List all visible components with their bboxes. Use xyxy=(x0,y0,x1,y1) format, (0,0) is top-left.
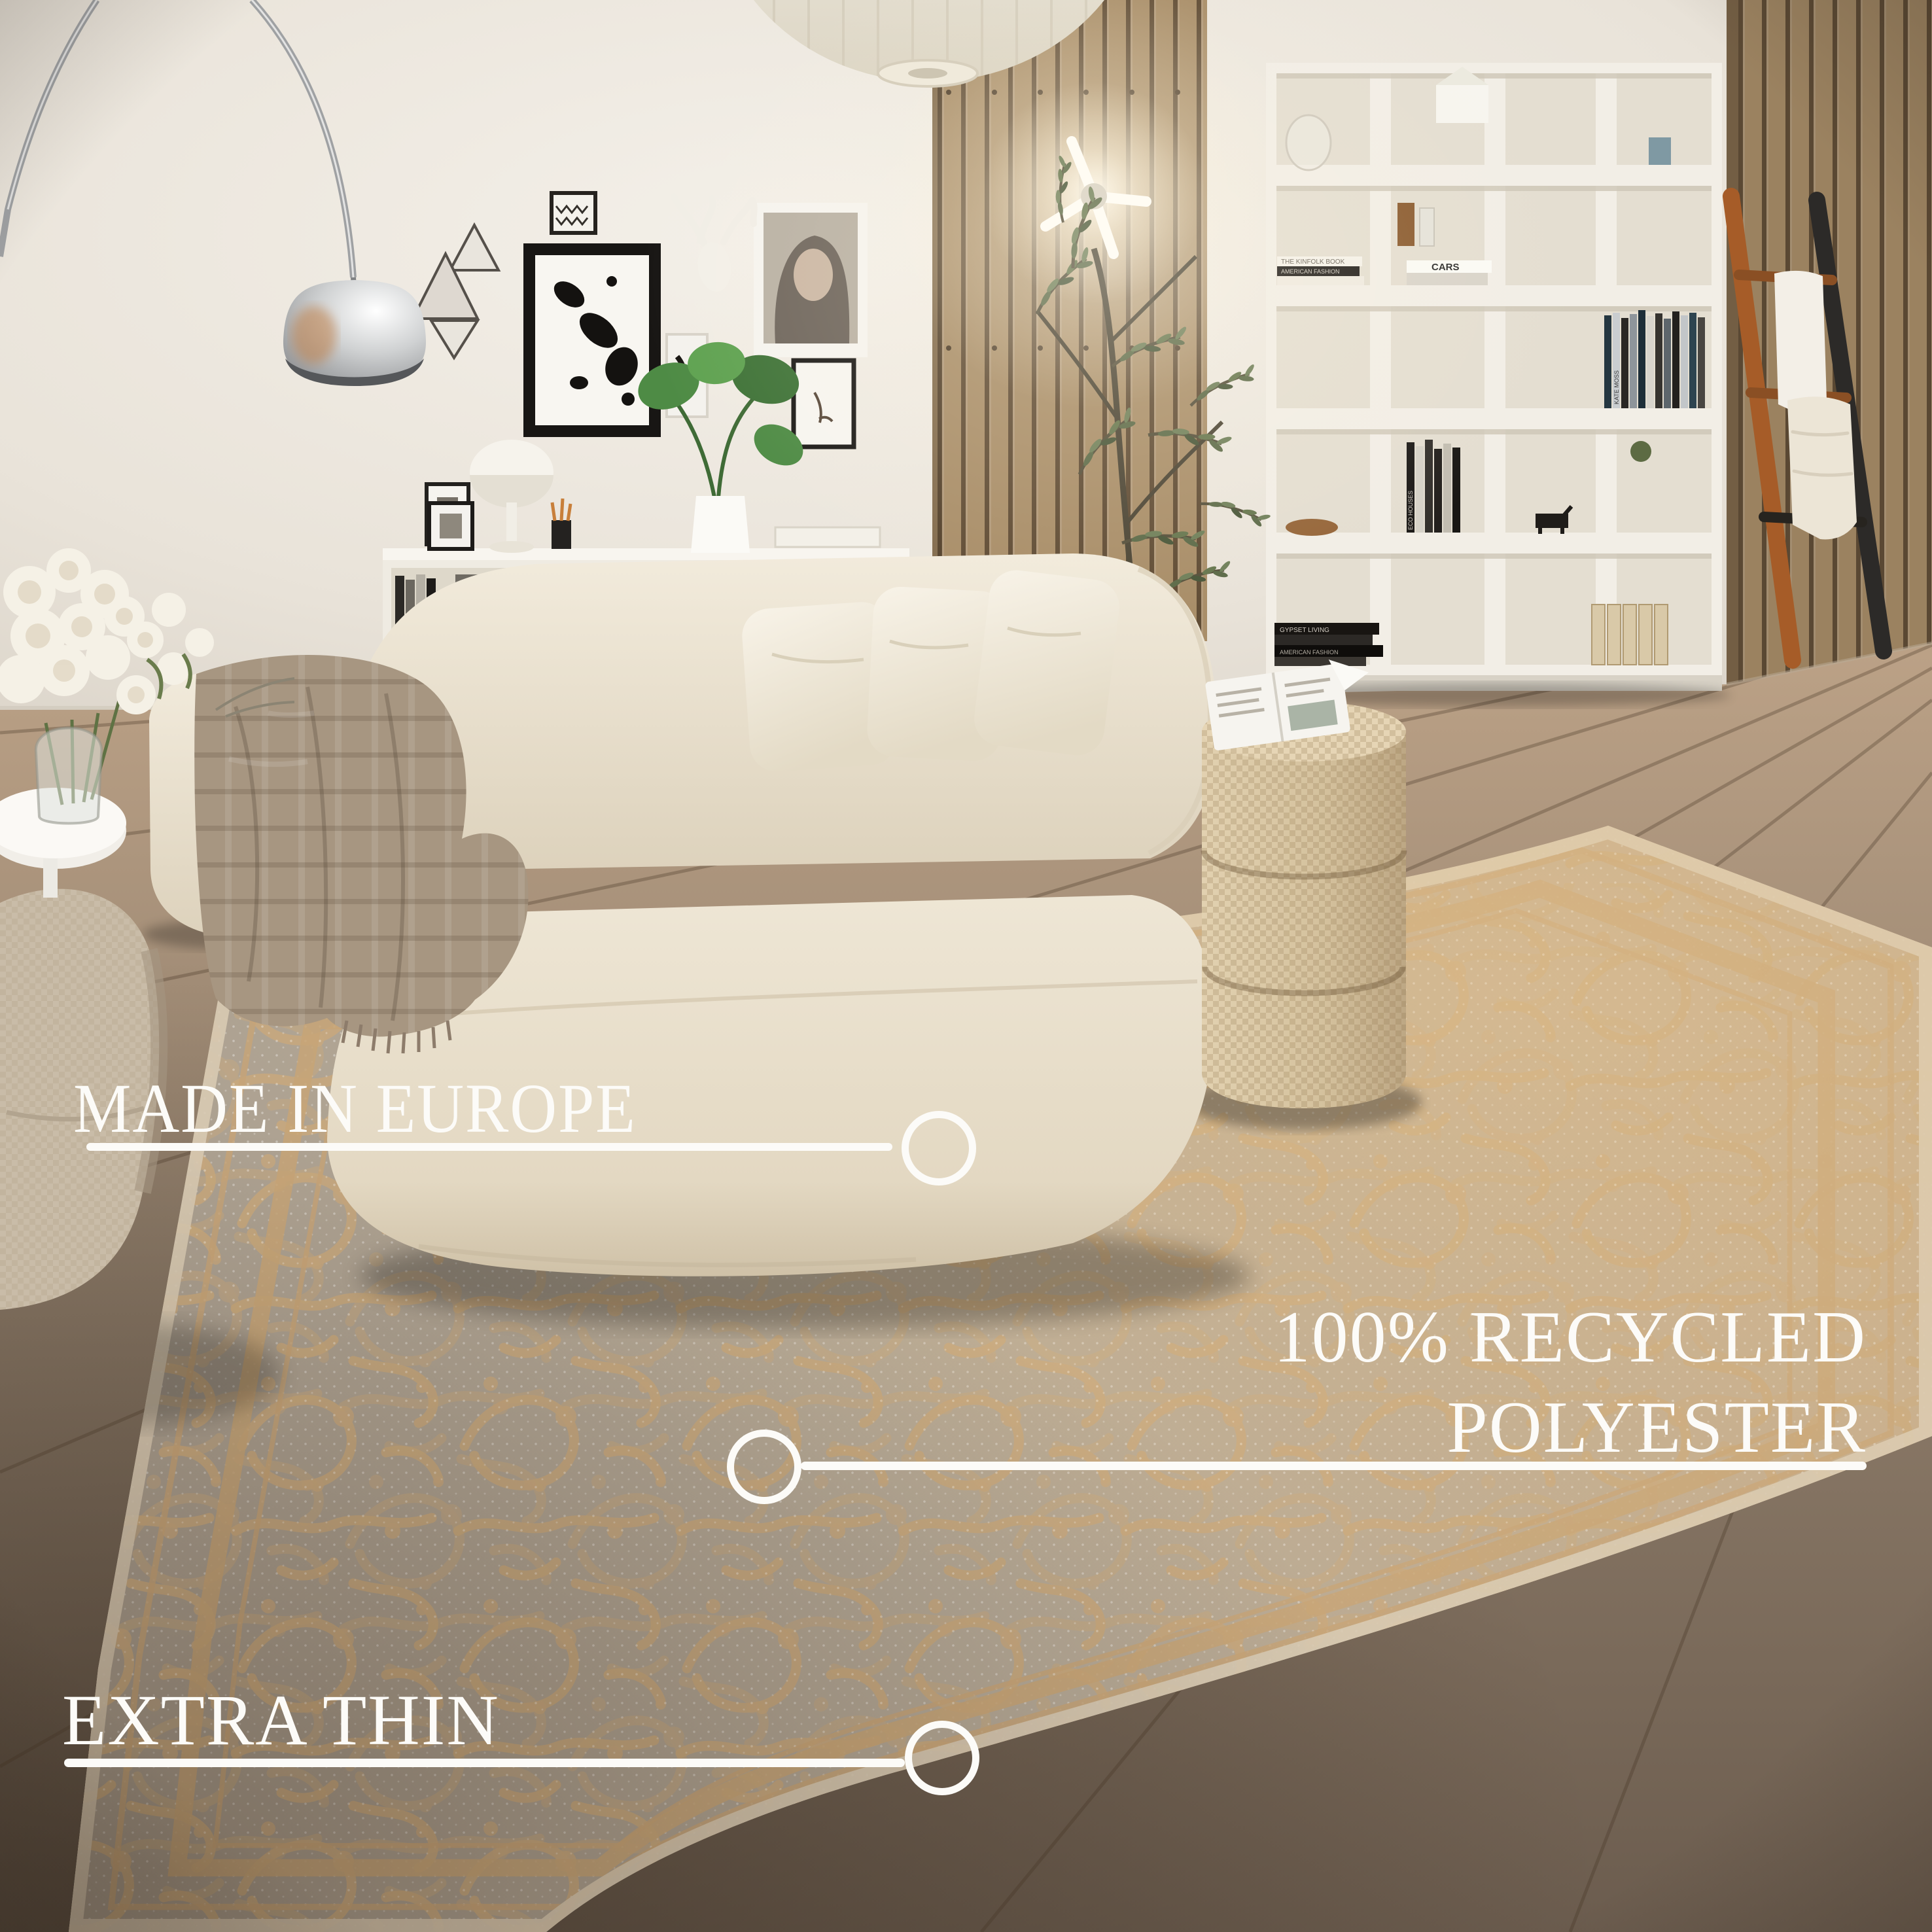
callout-made-in-europe-ring xyxy=(902,1111,976,1186)
vignette xyxy=(0,0,1932,1932)
callout-recycled-line2: POLYESTER xyxy=(1274,1383,1867,1473)
living-room-scene: THE KINFOLK BOOK AMERICAN FASHION CARS K… xyxy=(0,0,1932,1932)
callout-extra-thin-label: EXTRA THIN xyxy=(62,1684,500,1756)
callout-recycled-polyester-ring xyxy=(727,1430,801,1504)
callout-extra-thin-ring xyxy=(905,1721,979,1795)
callout-made-in-europe-rule xyxy=(86,1143,892,1151)
callout-recycled-line1: 100% RECYCLED xyxy=(1274,1293,1867,1383)
callout-recycled-polyester-rule xyxy=(801,1462,1867,1470)
callout-made-in-europe-label: MADE IN EUROPE xyxy=(73,1074,637,1144)
callout-extra-thin-rule xyxy=(64,1759,905,1767)
product-lifestyle-image: THE KINFOLK BOOK AMERICAN FASHION CARS K… xyxy=(0,0,1932,1932)
callout-recycled-polyester-label: 100% RECYCLED POLYESTER xyxy=(1274,1293,1867,1473)
